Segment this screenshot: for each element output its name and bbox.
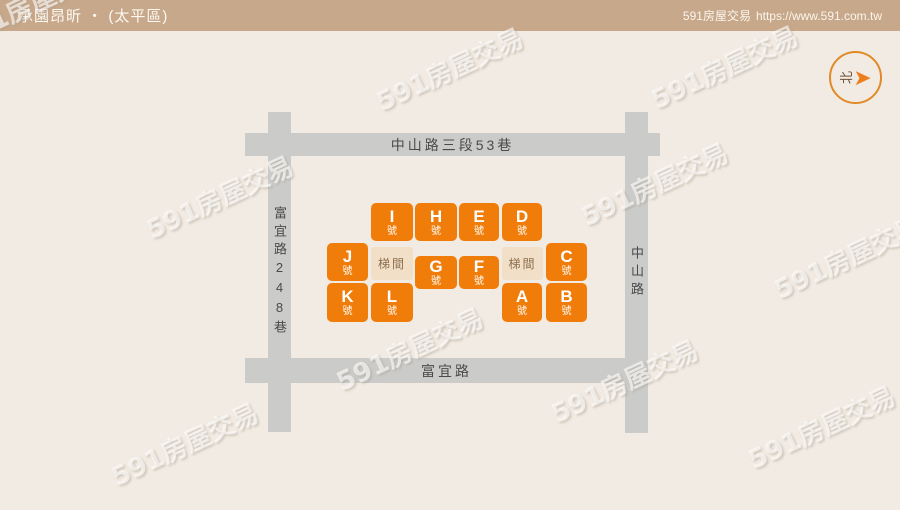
unit-block-K[interactable]: K 號 xyxy=(327,283,368,322)
unit-suffix: 號 xyxy=(474,277,484,287)
road-right: 中山路 xyxy=(625,112,648,433)
unit-block-D[interactable]: D 號 xyxy=(502,203,542,241)
unit-block-L[interactable]: L 號 xyxy=(371,283,413,322)
road-top: 中山路三段53巷 xyxy=(245,133,660,156)
unit-block-B[interactable]: B 號 xyxy=(546,283,587,322)
unit-letter: A xyxy=(516,288,528,305)
compass: 北 ➤ xyxy=(829,51,882,104)
site-plan-page: 承園昂昕 ‧ (太平區) 591房屋交易 https://www.591.com… xyxy=(0,0,900,510)
road-left: 富宜路248巷 xyxy=(268,112,291,432)
brand-name: 591房屋交易 xyxy=(683,7,751,24)
page-title: 承園昂昕 ‧ (太平區) xyxy=(18,5,168,26)
unit-block-H[interactable]: H 號 xyxy=(415,203,457,241)
watermark-text: 591房屋交易 xyxy=(370,18,529,118)
unit-suffix: 號 xyxy=(343,267,353,277)
unit-letter: C xyxy=(560,248,572,265)
road-bottom: 富宜路 xyxy=(245,358,648,383)
road-right-label: 中山路 xyxy=(627,246,646,300)
north-arrow-icon: ➤ xyxy=(853,67,871,89)
stairwell-left: 梯間 xyxy=(371,247,413,280)
unit-block-G[interactable]: G 號 xyxy=(415,256,457,289)
unit-suffix: 號 xyxy=(387,307,397,317)
watermark-text: 591房屋交易 xyxy=(742,376,900,476)
unit-letter: B xyxy=(560,288,572,305)
unit-block-C[interactable]: C 號 xyxy=(546,243,587,281)
unit-block-A[interactable]: A 號 xyxy=(502,283,542,322)
stairwell-right: 梯間 xyxy=(502,247,543,280)
unit-letter: H xyxy=(430,208,442,225)
unit-block-I[interactable]: I 號 xyxy=(371,203,413,241)
brand-url: https://www.591.com.tw xyxy=(756,9,882,23)
stairwell-label: 梯間 xyxy=(508,255,536,272)
unit-letter: D xyxy=(516,208,528,225)
unit-suffix: 號 xyxy=(343,307,353,317)
road-left-label: 富宜路248巷 xyxy=(270,206,289,338)
road-bottom-label: 富宜路 xyxy=(421,361,472,381)
watermark-text: 591房屋交易 xyxy=(768,206,900,306)
unit-letter: I xyxy=(390,208,395,225)
watermark-text: 591房屋交易 xyxy=(105,393,264,493)
stairwell-label: 梯間 xyxy=(378,255,406,272)
unit-letter: F xyxy=(474,258,484,275)
unit-block-E[interactable]: E 號 xyxy=(459,203,499,241)
unit-letter: L xyxy=(387,288,397,305)
unit-letter: G xyxy=(429,258,442,275)
unit-suffix: 號 xyxy=(562,267,572,277)
unit-suffix: 號 xyxy=(387,227,397,237)
north-label: 北 xyxy=(836,71,855,84)
unit-suffix: 號 xyxy=(517,227,527,237)
unit-block-F[interactable]: F 號 xyxy=(459,256,499,289)
unit-suffix: 號 xyxy=(517,307,527,317)
unit-block-J[interactable]: J 號 xyxy=(327,243,368,281)
unit-suffix: 號 xyxy=(562,307,572,317)
header-bar: 承園昂昕 ‧ (太平區) 591房屋交易 https://www.591.com… xyxy=(0,0,900,31)
unit-suffix: 號 xyxy=(431,277,441,287)
watermark-text: 591房屋交易 xyxy=(645,16,804,116)
unit-letter: E xyxy=(473,208,484,225)
unit-letter: K xyxy=(341,288,353,305)
brand-line: 591房屋交易 https://www.591.com.tw xyxy=(683,7,882,24)
unit-suffix: 號 xyxy=(431,227,441,237)
road-top-label: 中山路三段53巷 xyxy=(391,135,515,155)
unit-letter: J xyxy=(343,248,352,265)
unit-suffix: 號 xyxy=(474,227,484,237)
